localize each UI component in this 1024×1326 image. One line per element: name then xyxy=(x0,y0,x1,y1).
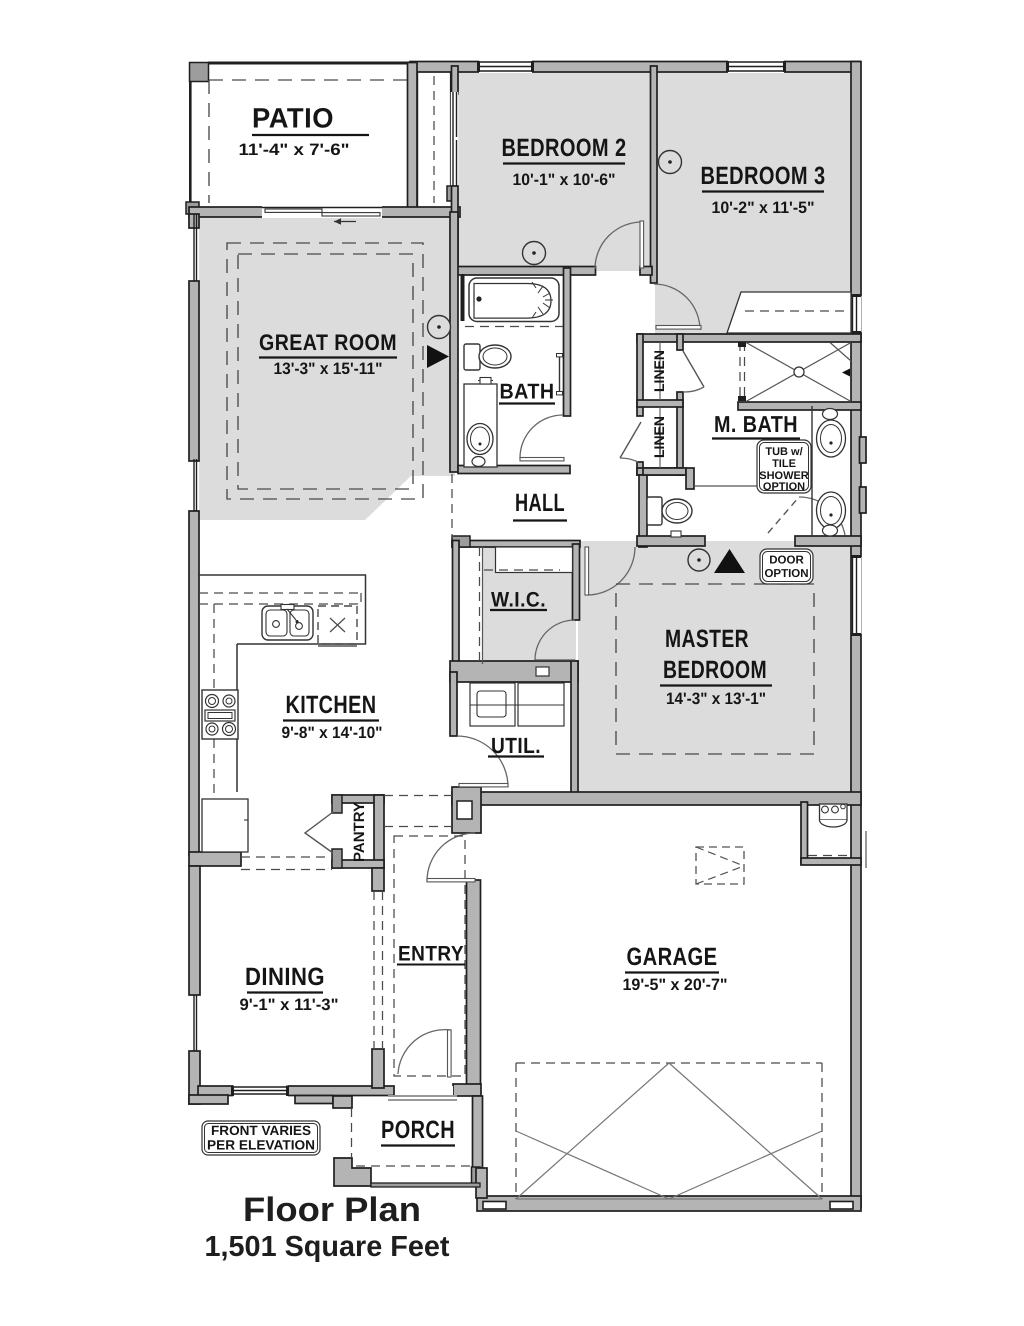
svg-text:OPTION: OPTION xyxy=(763,481,805,493)
svg-text:BATH: BATH xyxy=(500,380,555,404)
svg-text:DINING: DINING xyxy=(245,963,325,991)
svg-text:PANTRY: PANTRY xyxy=(351,802,368,862)
svg-text:MASTER: MASTER xyxy=(665,625,749,653)
svg-text:TUB w/: TUB w/ xyxy=(765,446,802,458)
svg-text:UTIL.: UTIL. xyxy=(491,733,541,758)
svg-text:DOOR: DOOR xyxy=(769,555,804,567)
svg-text:BEDROOM: BEDROOM xyxy=(663,656,767,684)
svg-text:ENTRY: ENTRY xyxy=(398,943,464,966)
svg-text:GREAT ROOM: GREAT ROOM xyxy=(259,330,397,355)
svg-text:FRONT VARIES: FRONT VARIES xyxy=(211,1123,311,1138)
svg-text:11'-4" x 7'-6": 11'-4" x 7'-6" xyxy=(239,141,350,159)
svg-text:W.I.C.: W.I.C. xyxy=(491,589,546,612)
svg-text:Floor Plan: Floor Plan xyxy=(243,1191,421,1229)
svg-text:9'-1" x 11'-3": 9'-1" x 11'-3" xyxy=(240,996,339,1014)
svg-text:LINEN: LINEN xyxy=(651,350,667,392)
svg-text:9'-8" x 14'-10": 9'-8" x 14'-10" xyxy=(282,724,383,742)
svg-text:KITCHEN: KITCHEN xyxy=(286,691,377,719)
svg-text:19'-5" x 20'-7": 19'-5" x 20'-7" xyxy=(623,976,728,994)
svg-text:10'-2" x 11'-5": 10'-2" x 11'-5" xyxy=(712,199,815,217)
svg-text:TILE: TILE xyxy=(772,458,796,470)
svg-text:OPTION: OPTION xyxy=(764,568,808,580)
svg-text:BEDROOM 3: BEDROOM 3 xyxy=(701,162,826,190)
svg-text:GARAGE: GARAGE xyxy=(627,943,718,971)
svg-text:1,501 Square Feet: 1,501 Square Feet xyxy=(205,1231,450,1263)
svg-text:14'-3" x 13'-1": 14'-3" x 13'-1" xyxy=(666,690,766,708)
svg-text:PER ELEVATION: PER ELEVATION xyxy=(207,1138,315,1153)
svg-text:HALL: HALL xyxy=(515,489,565,517)
svg-text:PORCH: PORCH xyxy=(381,1116,455,1144)
svg-text:10'-1" x 10'-6": 10'-1" x 10'-6" xyxy=(513,171,616,189)
svg-text:BEDROOM 2: BEDROOM 2 xyxy=(502,134,627,162)
svg-text:PATIO: PATIO xyxy=(252,103,334,134)
svg-text:LINEN: LINEN xyxy=(651,416,667,458)
svg-text:13'-3" x 15'-11": 13'-3" x 15'-11" xyxy=(274,360,383,378)
svg-text:M. BATH: M. BATH xyxy=(714,411,798,437)
